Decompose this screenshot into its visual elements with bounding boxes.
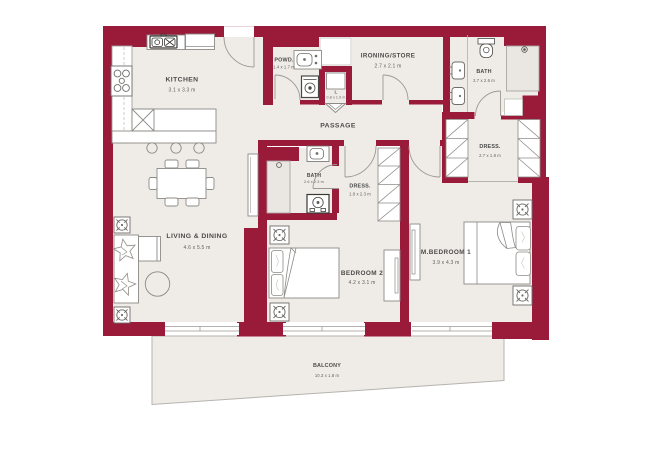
svg-text:POWD.: POWD. xyxy=(274,58,294,64)
svg-text:10.3 x 1.8 m: 10.3 x 1.8 m xyxy=(315,373,340,378)
svg-text:2.6 x 2.3 m: 2.6 x 2.3 m xyxy=(304,180,324,184)
svg-text:1.4 x 1.7 m: 1.4 x 1.7 m xyxy=(273,65,295,70)
svg-text:3.9 x 4.3 m: 3.9 x 4.3 m xyxy=(433,260,460,266)
svg-text:BALCONY: BALCONY xyxy=(313,363,341,369)
svg-text:BEDROOM 2: BEDROOM 2 xyxy=(341,270,383,277)
svg-text:DRESS.: DRESS. xyxy=(349,184,371,190)
svg-text:IRONING/STORE: IRONING/STORE xyxy=(361,53,416,60)
svg-text:PASSAGE: PASSAGE xyxy=(320,123,356,130)
svg-text:KITCHEN: KITCHEN xyxy=(165,77,198,84)
svg-text:DRESS.: DRESS. xyxy=(479,144,501,150)
svg-text:BATH: BATH xyxy=(476,69,491,75)
svg-text:4.2 x 3.1 m: 4.2 x 3.1 m xyxy=(349,280,376,286)
svg-text:2.7 x 2.1 m: 2.7 x 2.1 m xyxy=(375,64,402,70)
svg-text:3.1 x 3.3 m: 3.1 x 3.3 m xyxy=(169,88,196,94)
svg-text:1.8 x 2.3 m: 1.8 x 2.3 m xyxy=(349,192,371,197)
svg-text:L: L xyxy=(335,90,338,95)
svg-text:M.BEDROOM 1: M.BEDROOM 1 xyxy=(421,249,471,256)
svg-text:4.6 x 5.5 m: 4.6 x 5.5 m xyxy=(184,245,211,251)
svg-text:2.7 x 1.8 m: 2.7 x 1.8 m xyxy=(479,153,501,158)
svg-text:LIVING & DINING: LIVING & DINING xyxy=(166,233,227,240)
svg-text:BATH: BATH xyxy=(307,173,322,179)
svg-text:0.8 x 1.0 m: 0.8 x 1.0 m xyxy=(327,96,346,100)
svg-text:2.7 x 2.6 m: 2.7 x 2.6 m xyxy=(473,78,495,83)
